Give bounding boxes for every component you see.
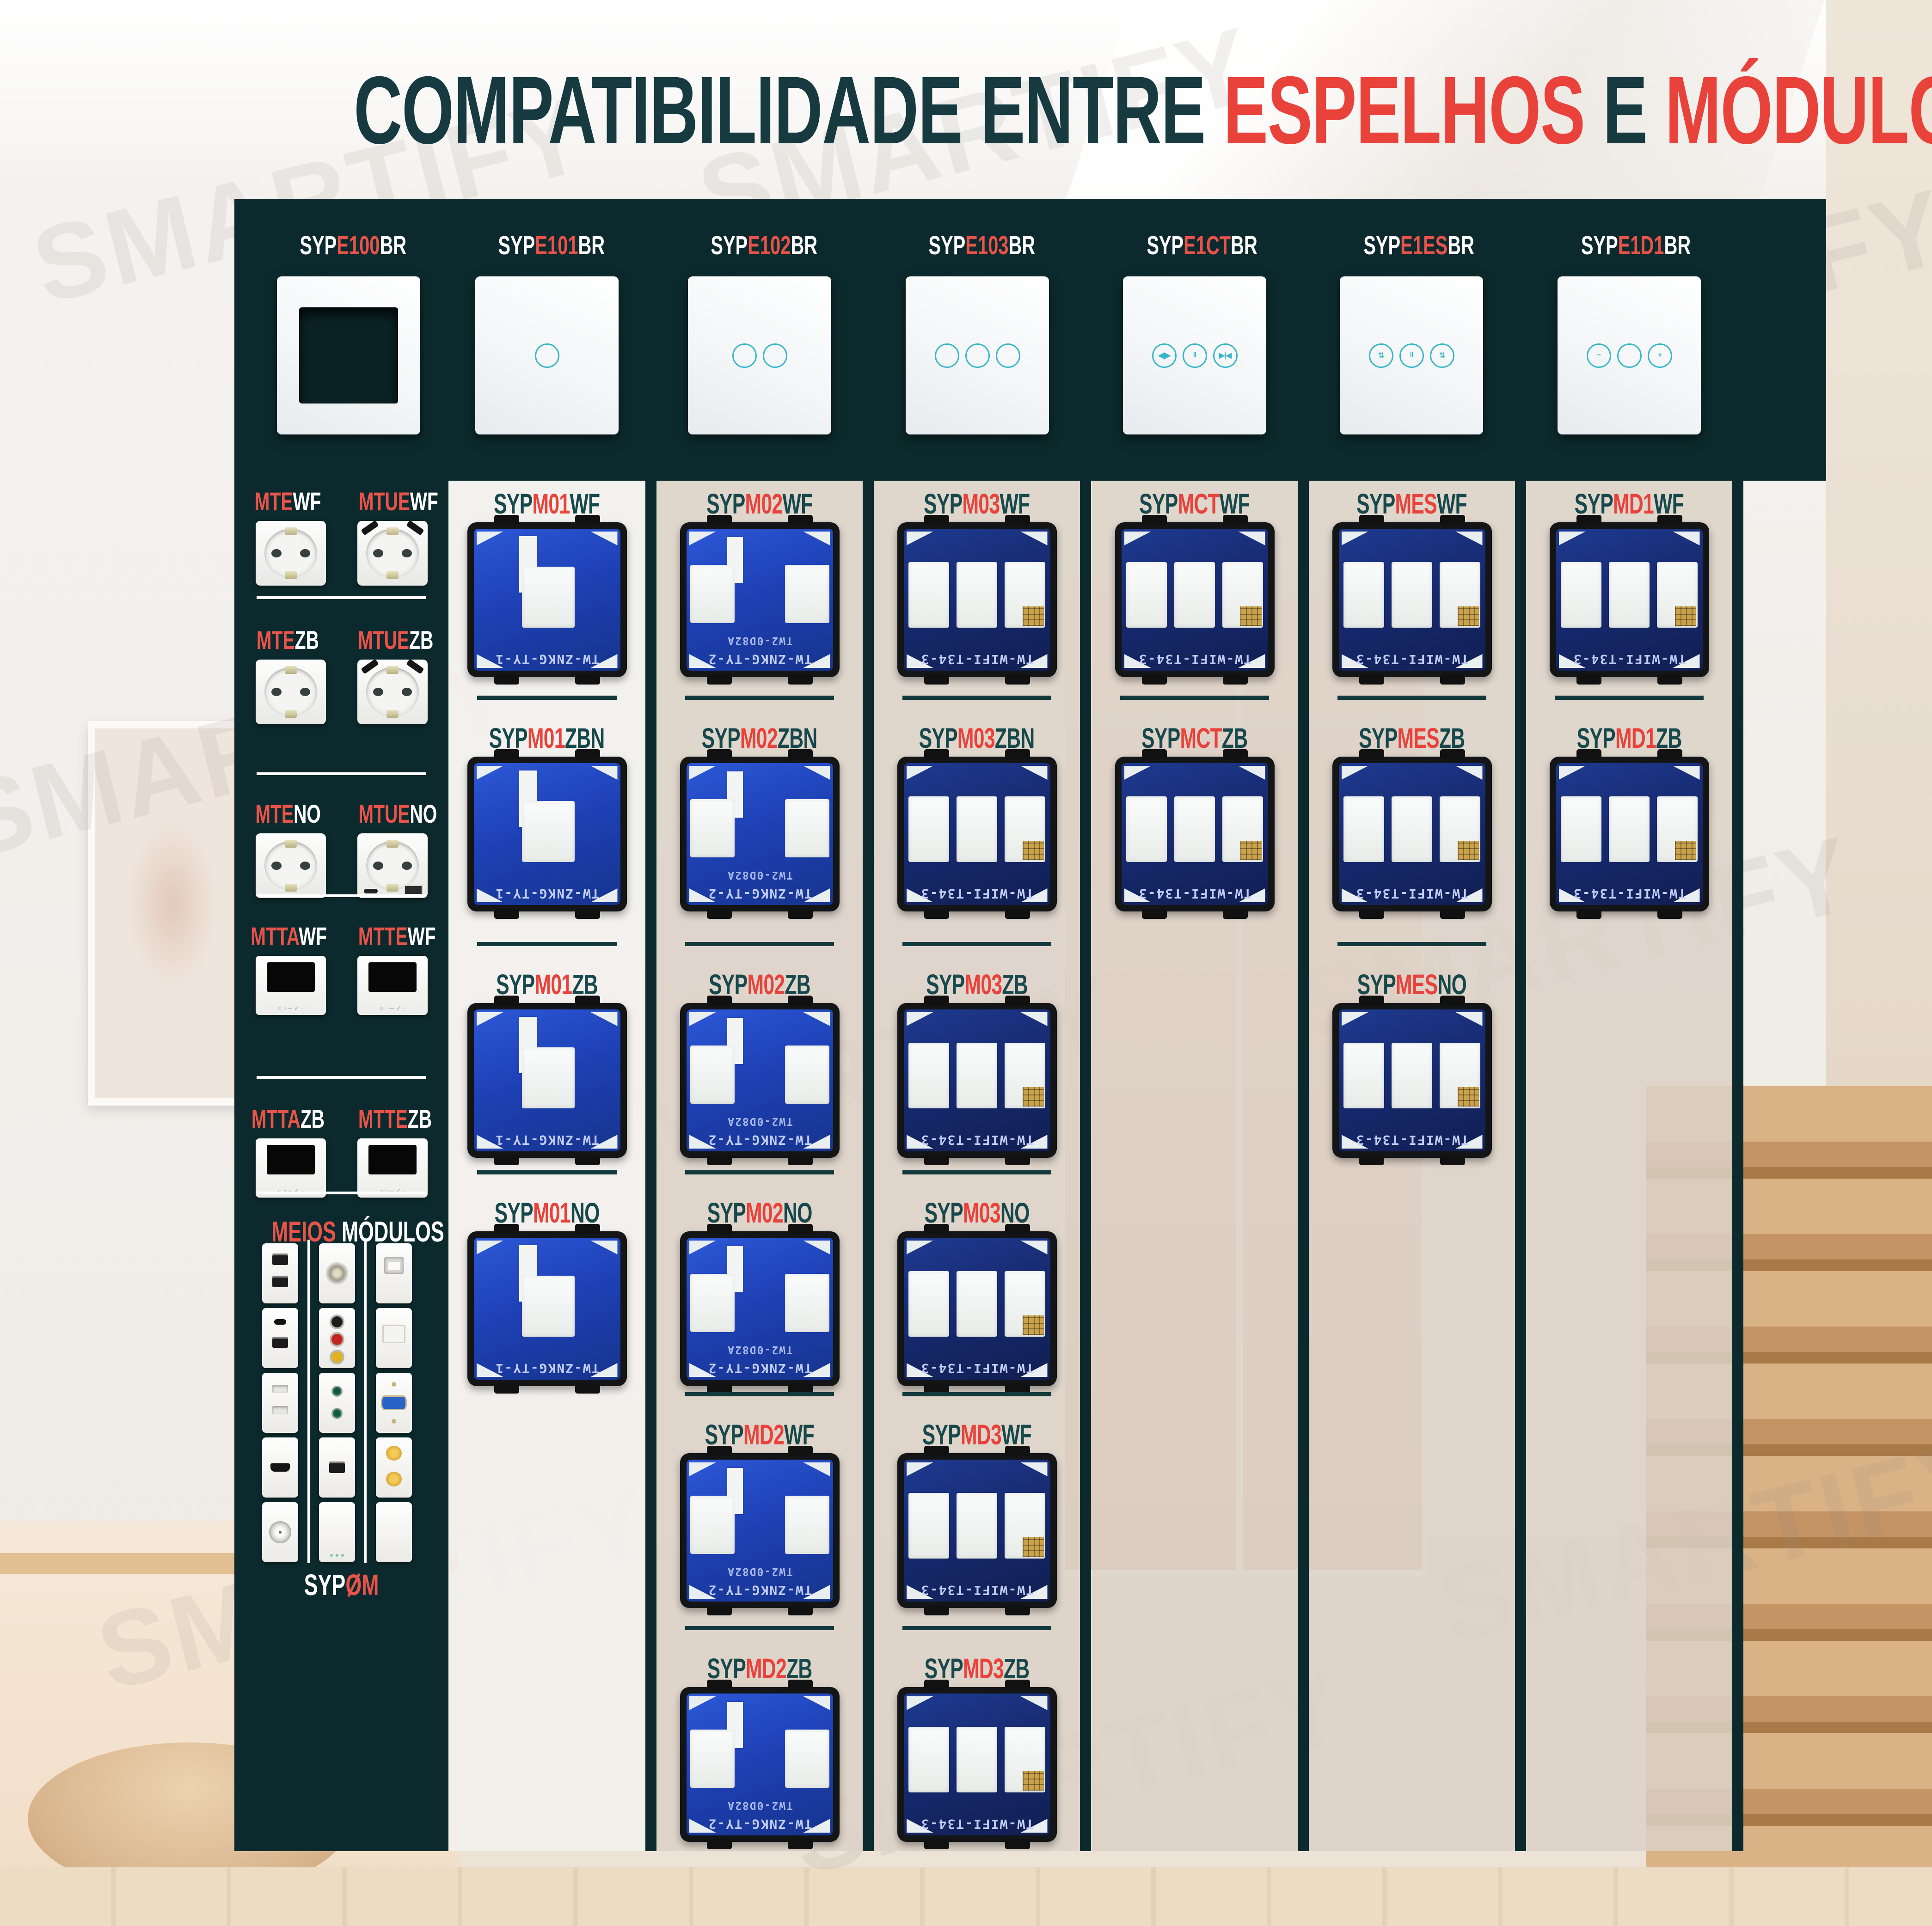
switch-key (957, 796, 997, 862)
module-code-label: SYPMCTWF (1092, 488, 1298, 520)
switch-key (957, 562, 997, 628)
row-divider (902, 1626, 1051, 1630)
banana-double-module (376, 1437, 412, 1498)
pcb-text: TW-WIFI-T34-3 (904, 886, 1050, 901)
socket-clip (285, 571, 297, 579)
mounting-tab (494, 909, 519, 919)
title-part-3: E (1603, 57, 1665, 164)
module-code-label: MTUENO (342, 799, 449, 829)
module-code-label: SYPM01WF (448, 488, 645, 520)
switch-key (1343, 1043, 1384, 1108)
panel-code-suffix: BR (1231, 231, 1257, 260)
sidebar-section-images (234, 833, 448, 898)
meios-footer-suffix: OM (345, 1568, 379, 1602)
pcb-board: TW-ZNKG-TY-2TW2-0D82A (687, 1238, 833, 1380)
touch-button-icon: + (1648, 343, 1672, 368)
switch-key (908, 1043, 949, 1108)
rj45-module (376, 1243, 412, 1303)
panel-code-mid: E101 (535, 231, 578, 260)
touch-button-icon: − (1587, 343, 1611, 368)
switch-key (522, 567, 575, 628)
module-code-mid: M03 (957, 722, 995, 754)
row-divider (477, 1170, 617, 1174)
row-divider (685, 942, 834, 946)
blank-module (376, 1502, 412, 1562)
pcb-text: TW-WIFI-T34-3 (1339, 652, 1485, 667)
pcb-board: TW-ZNKG-TY-1 (474, 1009, 620, 1151)
sidebar-section-images (234, 956, 448, 1015)
pcb-board: TW-WIFI-T34-3 (1556, 763, 1703, 905)
switch-key (1174, 562, 1215, 628)
module-code-label: SYPM03ZB (874, 968, 1080, 1001)
pcb-text: TW2-0D82A (687, 635, 833, 647)
switch-key (690, 1730, 735, 1788)
schuko-usb-socket-module (357, 660, 428, 724)
pcb-board: TW-WIFI-T34-3 (1339, 529, 1485, 671)
module-code-label: MTTEZB (342, 1104, 449, 1134)
pcb-module-SYPMESWF: TW-WIFI-T34-3 (1332, 522, 1492, 677)
title-part-4: MÓDULOS (1665, 57, 1932, 164)
mounting-tab (1576, 674, 1601, 685)
pcb-module-SYPM03NO: TW-WIFI-T34-3 (897, 1231, 1057, 1386)
mounting-tab (924, 515, 949, 525)
pcb-text: TW2-0D82A (687, 1799, 833, 1811)
section-divider (257, 1192, 426, 1194)
switch-key (957, 1043, 997, 1108)
mounting-tab (1440, 674, 1465, 685)
mounting-tab (924, 674, 949, 685)
title-part-1: COMPATIBILIDADE ENTRE (354, 57, 1223, 164)
row-divider (902, 942, 1051, 946)
thermostat-screen (368, 962, 417, 992)
panel-code-mid: E100 (337, 231, 380, 260)
mounting-tab (1440, 749, 1465, 759)
pcb-module-SYPM01ZBN: TW-ZNKG-TY-1 (467, 757, 627, 911)
pcb-connector (1023, 1087, 1044, 1107)
mounting-tab (924, 1605, 949, 1615)
corner-clip (1456, 532, 1483, 545)
sidebar-section-labels: MTTAWFMTTEWF (234, 921, 448, 951)
pcb-module-SYPM03ZB: TW-WIFI-T34-3 (897, 1003, 1057, 1158)
bg-wood-floor (0, 1867, 1932, 1926)
panel-code-suffix: BR (1008, 231, 1035, 260)
meios-column-separator (364, 1240, 367, 1563)
module-code-mid: MD1 (1615, 722, 1656, 754)
switch-key (1561, 796, 1601, 862)
pcb-module-SYPMESZB: TW-WIFI-T34-3 (1332, 757, 1492, 911)
socket-hole (373, 862, 383, 870)
module-code-label: SYPMD2WF (656, 1419, 863, 1451)
module-code-mid: M03 (963, 488, 1000, 520)
corner-clip (907, 532, 933, 545)
compatibility-infographic: SMARTIFY SMARTIFY SMARTIFY SMARTIFY SMAR… (0, 0, 1932, 1926)
module-code-mid: MD3 (961, 1419, 1001, 1450)
keystone-module (376, 1308, 412, 1368)
mounting-tab (924, 1446, 949, 1456)
mounting-tab (1359, 674, 1384, 685)
mounting-tab (707, 1155, 732, 1165)
touch-button-icon (1617, 343, 1642, 368)
corner-clip (803, 1462, 830, 1476)
mounting-tab (788, 1446, 813, 1456)
touch-button-icon (996, 343, 1020, 368)
panel-code-suffix: BR (578, 231, 605, 260)
touch-button-icon (732, 343, 757, 368)
vga-module (376, 1373, 412, 1433)
pcb-module-SYPM01ZB: TW-ZNKG-TY-1 (467, 1003, 627, 1158)
corner-clip (1673, 766, 1700, 780)
glass-panel (277, 276, 420, 434)
mounting-tab (575, 749, 600, 759)
module-code-mid: MES (1396, 969, 1437, 1000)
socket-clip (386, 884, 399, 892)
module-code-suffix: NO (294, 799, 321, 828)
pcb-text: TW2-0D82A (687, 1344, 833, 1356)
module-code-suffix: ZB (407, 1104, 431, 1133)
panel-code-label: SYPE103BR (906, 230, 1049, 261)
pcb-board: TW-ZNKG-TY-2TW2-0D82A (687, 1694, 833, 1835)
mounting-tab (788, 1839, 813, 1849)
module-code-suffix: WF (410, 487, 438, 516)
panel-code-label: SYPE1CTBR (1123, 230, 1266, 261)
module-column: SYPMD1WFTW-WIFI-T34-3SYPMD1ZBTW-WIFI-T34… (1526, 481, 1732, 1851)
corner-clip (1124, 766, 1151, 780)
pcb-module-SYPMD2WF: TW-ZNKG-TY-2TW2-0D82A (680, 1453, 840, 1608)
module-code-mid: M02 (747, 969, 785, 1000)
row-divider (902, 696, 1051, 700)
switch-key (1392, 1043, 1432, 1108)
module-code-mid: MD2 (743, 1419, 784, 1450)
socket-hole (402, 862, 412, 870)
switch-key (1126, 796, 1167, 862)
corner-clip (591, 1012, 618, 1026)
mounting-tab (707, 1839, 732, 1849)
pcb-board: TW-ZNKG-TY-2TW2-0D82A (687, 529, 833, 671)
schuko-socket-module (256, 521, 326, 586)
corner-clip (1673, 532, 1700, 545)
mounting-tab (924, 996, 949, 1006)
pcb-board: TW-WIFI-T34-3 (1339, 763, 1485, 905)
module-column: SYPM01WFTW-ZNKG-TY-1SYPM01ZBNTW-ZNKG-TY-… (448, 481, 645, 1851)
panel-code-prefix: SYP (711, 231, 748, 260)
module-code-suffix: WF (299, 922, 327, 951)
switch-key (690, 799, 735, 857)
sidebar-section: MTEZBMTUEZB (234, 625, 448, 724)
row-divider (902, 1170, 1051, 1174)
sidebar-section: MTENOMTUENO (234, 799, 448, 898)
corner-clip (477, 1012, 503, 1026)
module-column: SYPM03WFTW-WIFI-T34-3SYPM03ZBNTW-WIFI-T3… (874, 481, 1080, 1851)
pcb-text: TW-WIFI-T34-3 (904, 1132, 1050, 1148)
pcb-board: TW-WIFI-T34-3 (904, 529, 1050, 671)
module-code-label: MTUEWF (342, 486, 449, 516)
module-code-label: MTTEWF (342, 921, 449, 951)
glass-panel (688, 276, 831, 434)
column-divider (645, 481, 656, 1851)
panel-code-prefix: SYP (928, 231, 965, 260)
pcb-module-SYPMCTZB: TW-WIFI-T34-3 (1115, 757, 1275, 911)
switch-key (908, 1727, 949, 1792)
socket-clip (285, 840, 297, 848)
module-code-mid: MCT (1180, 722, 1222, 754)
mounting-tab (1005, 1605, 1030, 1615)
module-code-suffix: NO (410, 799, 437, 828)
pcb-board: TW-ZNKG-TY-1 (474, 1238, 620, 1380)
module-code-label: SYPM03ZBN (874, 722, 1080, 754)
corner-clip (907, 1696, 933, 1710)
pcb-module-SYPM01WF: TW-ZNKG-TY-1 (467, 522, 627, 677)
mounting-tab (707, 749, 732, 759)
switch-key (690, 1274, 735, 1332)
column-divider (863, 481, 874, 1851)
module-code-label: SYPM01ZB (448, 968, 645, 1001)
mounting-tab (1359, 749, 1384, 759)
sidebar-section-labels: MTEWFMTUEWF (234, 486, 448, 516)
pcb-text: TW-WIFI-T34-3 (1122, 886, 1268, 901)
pcb-board: TW-WIFI-T34-3 (1122, 529, 1268, 671)
panel-code-label: SYPE102BR (688, 230, 831, 261)
usb-double-module (262, 1243, 298, 1303)
row-divider (902, 1392, 1051, 1396)
mounting-tab (1657, 515, 1682, 525)
mounting-tab (707, 1446, 732, 1456)
thermostat-module (256, 1138, 326, 1198)
mounting-tab (924, 1155, 949, 1165)
mounting-tab (1576, 909, 1601, 919)
corner-clip (689, 1462, 716, 1476)
header-panel-SYPE103BR: SYPE103BR (906, 199, 1049, 481)
switch-key (1174, 796, 1215, 862)
switch-key (1609, 562, 1650, 628)
pcb-connector (1240, 841, 1262, 860)
pcb-connector (1023, 1537, 1044, 1557)
corner-clip (803, 1241, 830, 1254)
sidebar-section: MTTAZBMTTEZB (234, 1104, 448, 1198)
corner-clip (689, 766, 716, 780)
panel-code-suffix: BR (1447, 231, 1474, 260)
touch-button-icon: ◀|▶ (1152, 343, 1177, 368)
section-divider (257, 1076, 426, 1079)
pcb-text: TW-WIFI-T34-3 (1122, 652, 1268, 667)
switch-key (1126, 562, 1167, 628)
header-panel-SYPE100BR: SYPE100BR (277, 199, 420, 481)
module-code-mid: M01 (527, 722, 565, 754)
mounting-tab (788, 1224, 813, 1234)
mounting-tab (707, 1680, 732, 1690)
row-divider (1555, 696, 1704, 700)
panel-code-label: SYPE1ESBR (1340, 230, 1483, 261)
pcb-board: TW-ZNKG-TY-2TW2-0D82A (687, 1009, 833, 1151)
module-code-label: SYPMESZB (1309, 722, 1515, 754)
panel-code-prefix: SYP (498, 231, 535, 260)
title-part-2: ESPELHOS (1223, 57, 1603, 164)
module-code-label: MTENO (234, 799, 342, 829)
pcb-text: TW-ZNKG-TY-1 (474, 1361, 620, 1376)
corner-clip (591, 532, 618, 545)
module-code-label: SYPMD2ZB (656, 1652, 863, 1685)
corner-clip (1456, 1012, 1483, 1026)
corner-clip (477, 532, 503, 545)
flat-2pin-module (262, 1373, 298, 1433)
rca-module (319, 1308, 355, 1368)
frame-opening (299, 307, 398, 404)
header-panel-SYPE102BR: SYPE102BR (688, 199, 831, 481)
module-code-label: SYPMD1ZB (1526, 722, 1732, 754)
corner-clip (689, 1696, 716, 1710)
switch-key (957, 1727, 997, 1792)
pcb-connector (1675, 606, 1696, 626)
switch-key (522, 801, 575, 862)
switch-key (785, 1274, 829, 1332)
pcb-text: TW-ZNKG-TY-2 (687, 1816, 833, 1832)
module-code-label: MTUEZB (342, 625, 449, 655)
mounting-tab (494, 674, 519, 685)
pcb-connector (1458, 1087, 1479, 1107)
pcb-text: TW2-0D82A (687, 1565, 833, 1577)
header-panel-SYPE101BR: SYPE101BR (475, 199, 619, 481)
row-divider (1337, 696, 1486, 700)
socket-clip (386, 571, 399, 579)
mounting-tab (1005, 749, 1030, 759)
socket-hole (300, 862, 310, 870)
panel-code-mid: E103 (965, 231, 1008, 260)
mounting-tab (1576, 749, 1601, 759)
corner-clip (1559, 766, 1586, 780)
mounting-tab (1223, 909, 1248, 919)
socket-hole (271, 549, 282, 557)
schuko-socket-module (256, 833, 326, 898)
module-code-mid: MES (1398, 722, 1439, 754)
mounting-tab (1005, 1839, 1030, 1849)
module-code-label: SYPMD3ZB (874, 1652, 1080, 1685)
pcb-text: TW-WIFI-T34-3 (1339, 886, 1485, 901)
mounting-tab (788, 996, 813, 1006)
pcb-text: TW-WIFI-T34-3 (904, 1361, 1050, 1376)
header-panel-SYPE1D1BR: SYPE1D1BR−+ (1558, 199, 1701, 481)
module-code-label: SYPMCTZB (1092, 722, 1298, 754)
touch-button-icon: ‖ (1399, 343, 1424, 368)
corner-clip (1021, 1012, 1048, 1026)
pcb-connector (1458, 606, 1479, 626)
usb-c-usb-a-module (262, 1308, 298, 1368)
section-divider (257, 772, 426, 775)
switch-key (785, 565, 829, 623)
corner-clip (1021, 1462, 1048, 1476)
thermostat-screen (267, 962, 315, 992)
module-code-prefix: MTE (257, 625, 295, 654)
row-divider (1120, 696, 1269, 700)
pcb-text: TW-ZNKG-TY-1 (474, 652, 620, 667)
module-code-label: SYPMD1WF (1526, 488, 1732, 520)
pcb-connector (1240, 606, 1262, 626)
switch-key (1609, 796, 1650, 862)
row-divider (685, 696, 834, 700)
module-code-label: SYPM02ZBN (656, 722, 863, 754)
switch-key (1561, 562, 1601, 628)
mounting-tab (707, 1605, 732, 1615)
sidebar-section-images (234, 521, 448, 586)
mounting-tab (1576, 515, 1601, 525)
pcb-board: TW-ZNKG-TY-1 (474, 763, 620, 905)
switch-key (908, 562, 949, 628)
corner-clip (803, 1696, 830, 1710)
module-code-prefix: MTTA (251, 922, 299, 951)
module-code-prefix: MTUE (358, 799, 410, 828)
socket-hole (373, 549, 383, 557)
pcb-text: TW-ZNKG-TY-2 (687, 886, 833, 901)
pcb-text: TW2-0D82A (687, 1115, 833, 1127)
thermostat-module (357, 1138, 428, 1198)
pcb-board: TW-ZNKG-TY-2TW2-0D82A (687, 1460, 833, 1602)
module-code-label: MTTAZB (234, 1104, 342, 1134)
mounting-tab (1005, 996, 1030, 1006)
mounting-tab (707, 674, 732, 685)
module-code-mid: MD1 (1613, 488, 1654, 520)
pcb-module-SYPM02ZBN: TW-ZNKG-TY-2TW2-0D82A (680, 757, 840, 911)
socket-clip (285, 666, 297, 674)
pcb-module-SYPMD3WF: TW-WIFI-T34-3 (897, 1453, 1057, 1608)
mounting-tab (494, 1155, 519, 1165)
sidebar-panel: MTEWFMTUEWFMTEZBMTUEZBMTENOMTUENOMTTAWFM… (234, 481, 448, 1851)
section-divider (257, 894, 426, 897)
pcb-text: TW-WIFI-T34-3 (1556, 652, 1703, 667)
row-divider (477, 696, 617, 700)
page-title: COMPATIBILIDADE ENTRE ESPELHOS E MÓDULOS (0, 60, 1932, 161)
corner-clip (803, 766, 830, 780)
module-code-suffix: WF (293, 487, 321, 516)
pcb-text: TW-WIFI-T34-3 (904, 652, 1050, 667)
touch-button-icon: ▶|◀ (1213, 343, 1238, 368)
corner-clip (907, 1462, 933, 1476)
pcb-text: TW-ZNKG-TY-2 (687, 652, 833, 667)
module-code-prefix: MTE (255, 799, 294, 828)
glass-panel (475, 276, 619, 434)
module-code-label: SYPM03NO (874, 1197, 1080, 1229)
mounting-tab (788, 909, 813, 919)
mounting-tab (575, 1383, 600, 1394)
pcb-text: TW-WIFI-T34-3 (1339, 1132, 1485, 1148)
row-divider (685, 1392, 834, 1396)
mounting-tab (575, 515, 600, 525)
schuko-usb-socket-module (357, 521, 428, 586)
mounting-tab (494, 515, 519, 525)
panel-code-mid: E102 (748, 231, 791, 260)
corner-clip (591, 1241, 618, 1254)
mounting-tab (575, 1224, 600, 1234)
module-code-prefix: MTTE (358, 922, 407, 951)
module-code-prefix: MTTE (358, 1104, 408, 1133)
meios-footer-prefix: SYP (304, 1568, 346, 1602)
module-code-mid: MES (1395, 488, 1437, 520)
module-code-mid: MCT (1178, 488, 1220, 520)
blank-plate-module (319, 1502, 355, 1562)
module-code-mid: M02 (745, 488, 783, 520)
header-panel-SYPE1ESBR: SYPE1ESBR⇅‖⇅ (1340, 199, 1483, 481)
pcb-connector (1023, 841, 1044, 860)
mounting-tab (1359, 909, 1384, 919)
mounting-tab (1359, 996, 1384, 1006)
module-code-prefix: MTE (255, 487, 293, 516)
thermostat-screen (368, 1145, 417, 1174)
switch-key (957, 1493, 997, 1559)
sidebar-section-images (234, 1138, 448, 1198)
mounting-tab (1657, 909, 1682, 919)
pcb-module-SYPM02ZB: TW-ZNKG-TY-2TW2-0D82A (680, 1003, 840, 1158)
panel-code-suffix: BR (1664, 231, 1691, 260)
module-code-label: MTEZB (234, 625, 342, 655)
touch-button-icon (763, 343, 787, 368)
socket-hole (300, 549, 310, 557)
